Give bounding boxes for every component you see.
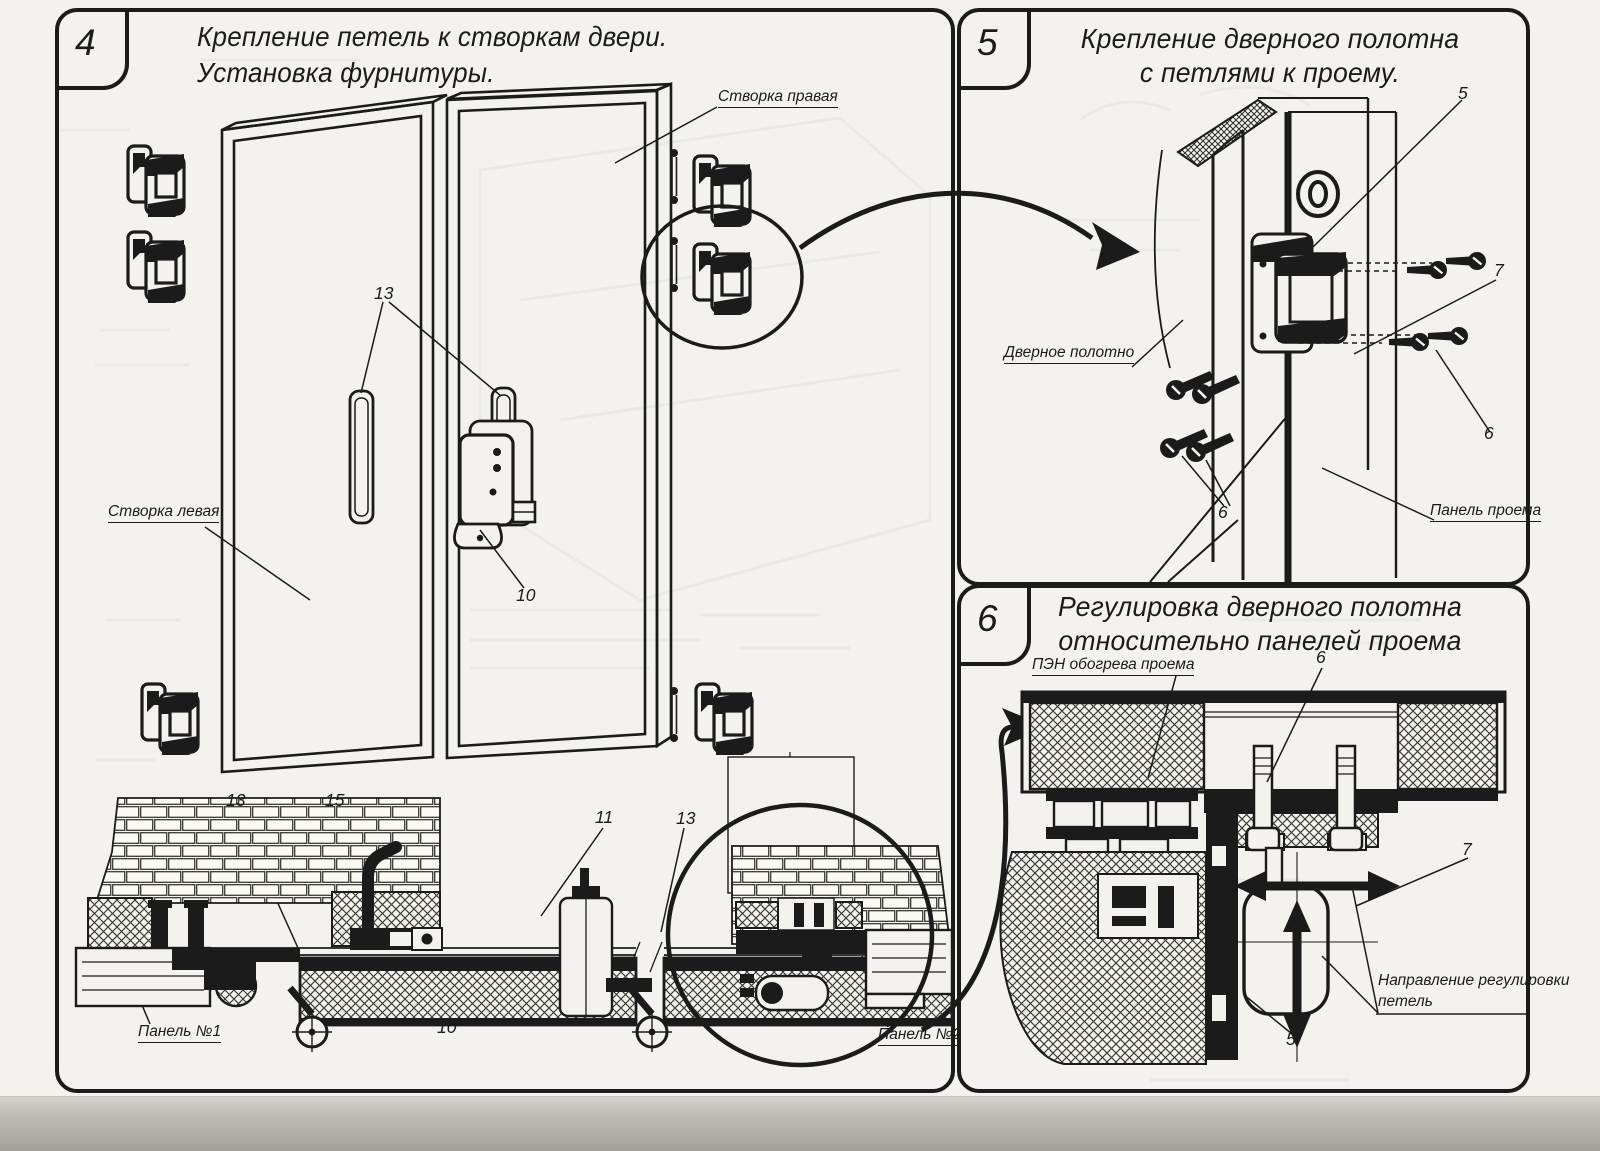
callout-roller: 11 [595, 808, 613, 826]
panel-6-title-line2: относительно панелей проема [1032, 624, 1488, 658]
panel-6-number: 6 [977, 600, 1027, 637]
label-heater: ПЭН обогрева проема [1032, 656, 1194, 676]
adjust-arrow-icon [1368, 871, 1400, 901]
panel-4-number: 4 [75, 24, 125, 61]
screw-icon [1446, 252, 1486, 270]
callout-section-hinge2: 13 [676, 809, 695, 827]
callout-p5-hinge: 5 [1458, 84, 1468, 102]
panel-5-badge: 5 [961, 12, 1031, 90]
handles-lock-drawing [350, 388, 535, 548]
hinge-icon [128, 146, 184, 217]
callout-section-hinge: 13 [226, 791, 245, 809]
callout-p5-screw-right: 6 [1484, 424, 1494, 442]
callout-section-lock: 10 [437, 1018, 456, 1036]
zoom-arrow-icon [1092, 222, 1140, 270]
callout-p6-bolt: 6 [1316, 648, 1326, 666]
hinge-icon [128, 232, 184, 303]
panel-5-title-line1: Крепление дверного полотна [1042, 22, 1498, 56]
label-left-leaf: Створка левая [108, 503, 219, 523]
panel-6-badge: 6 [961, 588, 1031, 666]
callout-p5-bracket: 7 [1494, 261, 1504, 279]
screw-icon [1428, 327, 1468, 345]
scan-page-edge [0, 1096, 1600, 1151]
technical-drawing [0, 0, 1600, 1151]
callout-p6-hinge: 5 [1286, 1030, 1296, 1048]
callout-handles: 13 [374, 284, 393, 302]
callout-p5-screws-left: 6 [1218, 503, 1228, 521]
hinge-icon [694, 156, 750, 227]
panel-4-title-line2: Установка фурнитуры. [197, 56, 495, 90]
label-adjust-direction-line1: Направление регулировки [1378, 972, 1570, 991]
label-opening-panel: Панель проема [1430, 502, 1541, 522]
panel-4-title-line1: Крепление петель к створкам двери. [197, 20, 667, 54]
screw-icon [1407, 261, 1447, 279]
label-panel-1: Панель №1 [138, 1023, 221, 1043]
callout-stay: 15 [325, 791, 344, 809]
label-adjust-direction-line2: петель [1378, 993, 1433, 1012]
hinge-icon [696, 684, 752, 755]
instruction-sheet: 4 5 6 Крепление петель к створкам двери.… [0, 0, 1600, 1151]
hinge-icon [142, 684, 198, 755]
panel6-drawing [1000, 668, 1528, 1064]
callout-p6-bracket: 7 [1462, 840, 1472, 858]
panel-5-title-line2: с петлями к проему. [1042, 56, 1498, 90]
panel-6-title-line1: Регулировка дверного полотна [1032, 590, 1488, 624]
label-panel-2: Панель №2 [878, 1026, 961, 1046]
callout-lock: 10 [516, 586, 535, 604]
label-right-leaf: Створка правая [718, 88, 838, 108]
screw-rod-icon [670, 687, 678, 742]
screw-rod-icon [670, 149, 678, 204]
panel-4-badge: 4 [59, 12, 129, 90]
hinge-icon [694, 244, 750, 315]
panel-5-number: 5 [977, 24, 1027, 61]
screw-rod-icon [670, 237, 678, 292]
label-door-leaf: Дверное полотно [1004, 344, 1134, 364]
